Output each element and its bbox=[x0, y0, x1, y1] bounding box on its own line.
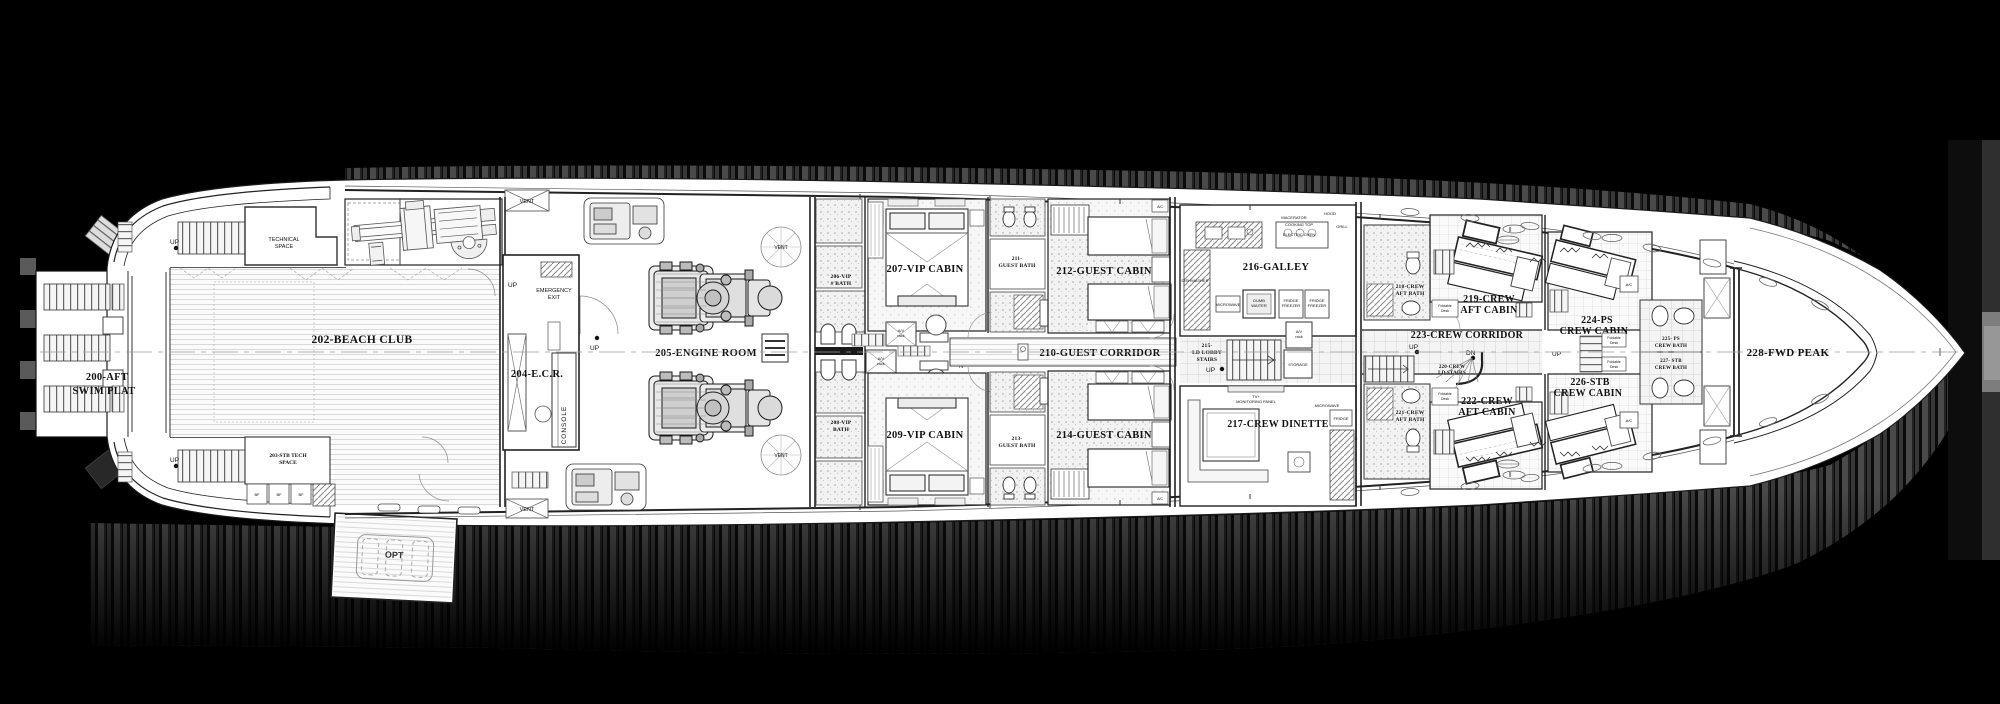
svg-text:A/C: A/C bbox=[1157, 205, 1163, 209]
svg-text:Desk: Desk bbox=[1441, 397, 1449, 401]
svg-text:Desk: Desk bbox=[1610, 341, 1618, 345]
svg-text:209-VIP CABIN: 209-VIP CABIN bbox=[886, 430, 963, 441]
svg-text:200-AFT: 200-AFT bbox=[86, 372, 128, 383]
svg-text:218-CREW: 218-CREW bbox=[1396, 284, 1425, 290]
svg-text:LD LOBBY: LD LOBBY bbox=[1192, 350, 1222, 356]
svg-text:MICROWAVE: MICROWAVE bbox=[1216, 302, 1241, 307]
svg-text:GUEST BATH: GUEST BATH bbox=[998, 263, 1036, 269]
svg-text:GUEST BATH: GUEST BATH bbox=[998, 443, 1036, 449]
svg-text:EMERGENCY: EMERGENCY bbox=[536, 288, 572, 294]
svg-text:216-GALLEY: 216-GALLEY bbox=[1243, 262, 1310, 273]
svg-text:212-GUEST CABIN: 212-GUEST CABIN bbox=[1056, 266, 1152, 277]
svg-text:VENT: VENT bbox=[520, 507, 535, 513]
svg-text:TECHNICAL: TECHNICAL bbox=[268, 237, 299, 243]
svg-text:A/C: A/C bbox=[1626, 282, 1633, 287]
svg-text:BF: BF bbox=[254, 492, 260, 497]
svg-text:OPT: OPT bbox=[385, 550, 404, 561]
svg-text:225- PS: 225- PS bbox=[1662, 337, 1680, 342]
svg-text:FREEZER: FREEZER bbox=[1282, 303, 1301, 308]
svg-text:MICROWAVE: MICROWAVE bbox=[1315, 403, 1340, 408]
svg-text:SPACE: SPACE bbox=[279, 460, 297, 466]
svg-text:203-STB TECH: 203-STB TECH bbox=[269, 453, 307, 459]
svg-text:DISHWASHER: DISHWASHER bbox=[1182, 278, 1209, 283]
svg-text:VENT: VENT bbox=[774, 453, 787, 459]
svg-text:224-PS: 224-PS bbox=[1581, 315, 1613, 326]
svg-text:LD STAIRS: LD STAIRS bbox=[1438, 371, 1466, 376]
svg-text:215-: 215- bbox=[1202, 343, 1213, 349]
svg-text:FREEZER: FREEZER bbox=[1308, 303, 1327, 308]
svg-text:FRIDGE: FRIDGE bbox=[1333, 416, 1348, 421]
svg-text:rack: rack bbox=[877, 361, 885, 366]
svg-text:SWIM PLAT: SWIM PLAT bbox=[73, 386, 136, 397]
svg-text:A/C: A/C bbox=[1157, 497, 1163, 501]
svg-text:Foldable: Foldable bbox=[1438, 392, 1451, 396]
svg-text:WAITER: WAITER bbox=[1251, 303, 1267, 308]
svg-text:STORAGE: STORAGE bbox=[1288, 362, 1308, 367]
svg-text:MONITORING PANEL: MONITORING PANEL bbox=[1236, 399, 1277, 404]
svg-text:CREW CABIN: CREW CABIN bbox=[1554, 388, 1623, 399]
svg-text:# BATH: # BATH bbox=[831, 281, 852, 287]
svg-text:204-E.C.R.: 204-E.C.R. bbox=[511, 369, 563, 380]
svg-text:UP: UP bbox=[170, 239, 179, 246]
svg-text:GRILL: GRILL bbox=[1336, 224, 1348, 229]
svg-text:MACERATOR: MACERATOR bbox=[1281, 215, 1306, 220]
svg-text:SPACE: SPACE bbox=[275, 244, 294, 250]
svg-text:207-VIP CABIN: 207-VIP CABIN bbox=[886, 264, 963, 275]
svg-text:Desk: Desk bbox=[1610, 365, 1618, 369]
svg-text:211-: 211- bbox=[1012, 256, 1023, 262]
svg-text:STAIRS: STAIRS bbox=[1197, 357, 1218, 363]
svg-text:208-VIP: 208-VIP bbox=[831, 420, 852, 426]
svg-text:A/C: A/C bbox=[1626, 418, 1633, 423]
svg-text:222-CREW: 222-CREW bbox=[1461, 396, 1513, 407]
svg-text:HOOD: HOOD bbox=[1324, 211, 1336, 216]
svg-text:AFT BATH: AFT BATH bbox=[1395, 291, 1425, 297]
svg-text:202-BEACH CLUB: 202-BEACH CLUB bbox=[311, 334, 412, 346]
svg-text:BF: BF bbox=[276, 492, 282, 497]
svg-text:CREW BATH: CREW BATH bbox=[1655, 366, 1687, 371]
svg-text:EXIT: EXIT bbox=[548, 295, 561, 301]
svg-text:Desk: Desk bbox=[1441, 309, 1449, 313]
svg-text:226-STB: 226-STB bbox=[1570, 377, 1609, 388]
svg-text:221-CREW: 221-CREW bbox=[1396, 410, 1425, 416]
svg-text:AFT BATH: AFT BATH bbox=[1395, 417, 1425, 423]
svg-text:217-CREW DINETTE: 217-CREW DINETTE bbox=[1227, 419, 1329, 430]
svg-text:BF: BF bbox=[298, 492, 304, 497]
svg-text:CREW BATH: CREW BATH bbox=[1655, 344, 1687, 349]
svg-text:rack: rack bbox=[1295, 334, 1303, 339]
svg-text:Foldable: Foldable bbox=[1607, 336, 1620, 340]
svg-text:UP: UP bbox=[508, 282, 517, 289]
svg-text:213-: 213- bbox=[1012, 436, 1023, 442]
svg-text:rack: rack bbox=[897, 333, 905, 338]
svg-text:206-VIP: 206-VIP bbox=[831, 274, 852, 280]
svg-text:ELECTRIC OVEN: ELECTRIC OVEN bbox=[1283, 232, 1315, 237]
svg-text:BATH: BATH bbox=[833, 427, 850, 433]
svg-text:223-CREW CORRIDOR: 223-CREW CORRIDOR bbox=[1411, 330, 1524, 341]
svg-text:UP: UP bbox=[1206, 367, 1215, 374]
svg-text:219-CREW: 219-CREW bbox=[1463, 294, 1515, 305]
svg-text:VENT: VENT bbox=[520, 199, 535, 205]
svg-text:AFT CABIN: AFT CABIN bbox=[1460, 305, 1518, 316]
svg-text:Foldable: Foldable bbox=[1438, 304, 1451, 308]
svg-text:228-FWD PEAK: 228-FWD PEAK bbox=[1747, 347, 1830, 359]
svg-text:DN: DN bbox=[1466, 350, 1476, 357]
svg-text:UP: UP bbox=[590, 345, 599, 352]
svg-text:210-GUEST CORRIDOR: 210-GUEST CORRIDOR bbox=[1039, 348, 1160, 359]
svg-text:VENT: VENT bbox=[774, 245, 787, 251]
svg-text:214-GUEST CABIN: 214-GUEST CABIN bbox=[1056, 430, 1152, 441]
svg-text:AFT CABIN: AFT CABIN bbox=[1458, 407, 1516, 418]
svg-text:UP: UP bbox=[1409, 344, 1418, 351]
svg-text:Foldable: Foldable bbox=[1607, 360, 1620, 364]
svg-text:205-ENGINE ROOM: 205-ENGINE ROOM bbox=[655, 348, 757, 359]
svg-text:CONSOLE: CONSOLE bbox=[561, 406, 568, 445]
svg-text:227- STB: 227- STB bbox=[1660, 359, 1682, 364]
svg-text:UP: UP bbox=[170, 457, 179, 464]
